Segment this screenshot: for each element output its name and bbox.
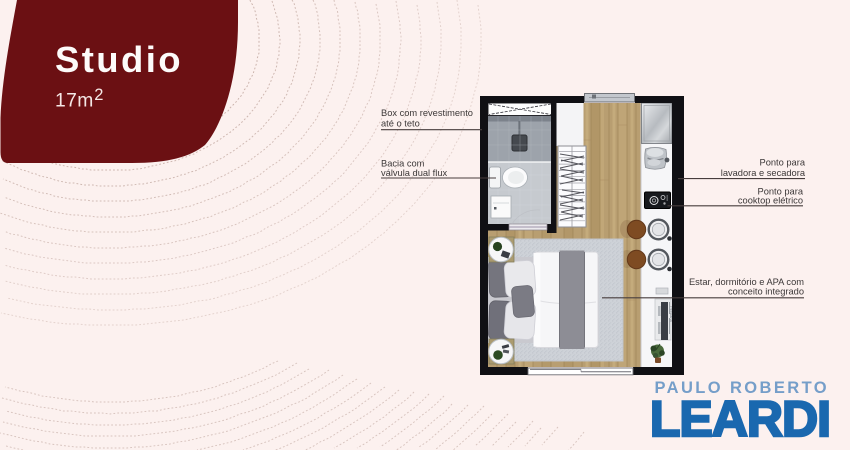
- svg-text:conceito integrado: conceito integrado: [728, 287, 804, 297]
- svg-text:até o teto: até o teto: [381, 119, 420, 129]
- svg-text:Box com revestimento: Box com revestimento: [381, 108, 473, 118]
- svg-text:Bacia com: Bacia com: [381, 159, 425, 169]
- svg-text:válvula dual flux: válvula dual flux: [381, 168, 448, 178]
- svg-text:lavadora e secadora: lavadora e secadora: [721, 168, 806, 178]
- svg-text:LEARDI: LEARDI: [650, 391, 830, 447]
- svg-text:cooktop elétrico: cooktop elétrico: [738, 196, 803, 206]
- svg-text:Studio: Studio: [55, 39, 183, 80]
- svg-text:Ponto para: Ponto para: [760, 158, 806, 168]
- svg-text:Estar, dormitório e APA com: Estar, dormitório e APA com: [689, 277, 804, 287]
